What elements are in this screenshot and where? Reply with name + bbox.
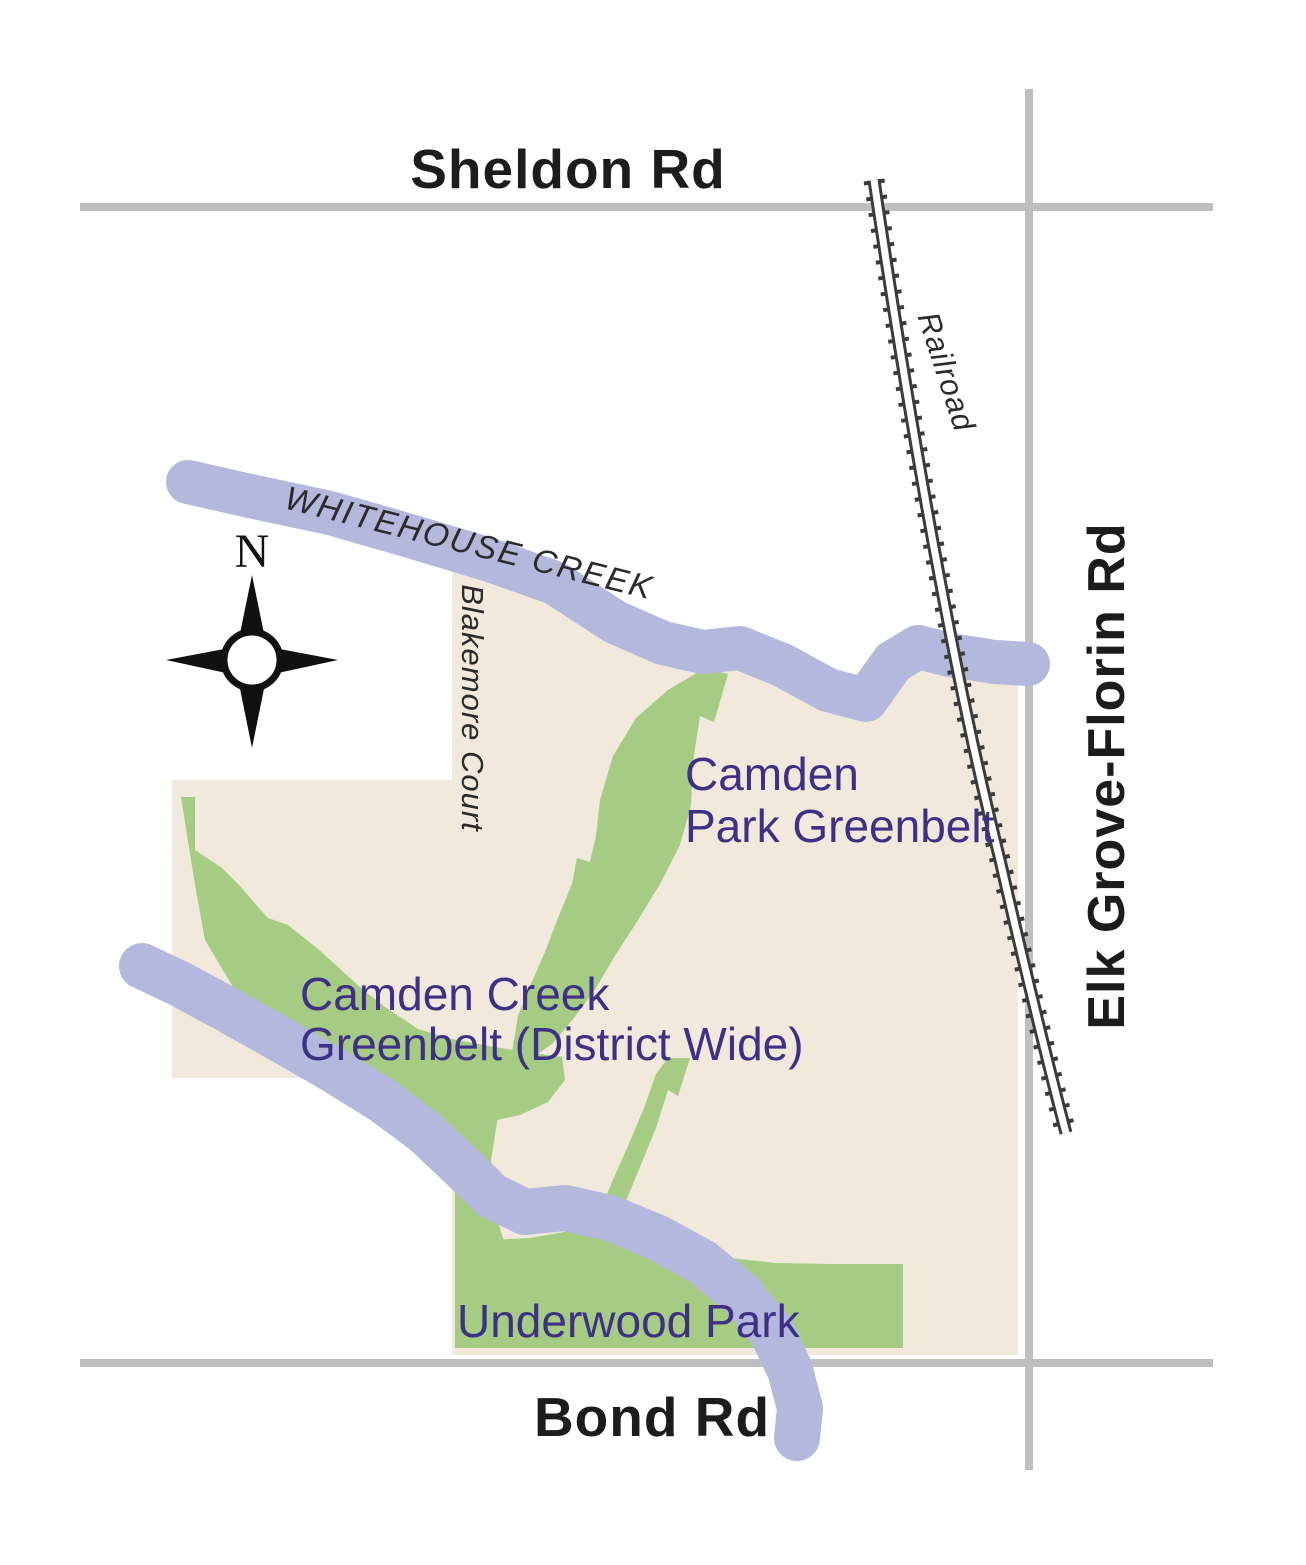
compass-center-circle [224,632,280,688]
bond-rd-label: Bond Rd [534,1386,770,1448]
park-district-map: N Sheldon Rd Bond Rd Elk Grove-Florin Rd… [0,0,1306,1565]
blakemore-court-label: Blakemore Court [455,584,490,832]
camden-creek-greenbelt-label-line2: Greenbelt (District Wide) [300,1018,804,1070]
camden-creek-greenbelt-label-line1: Camden Creek [300,968,610,1020]
sheldon-rd-label: Sheldon Rd [410,138,726,200]
camden-park-greenbelt-label-line1: Camden [685,748,859,800]
map-canvas: N Sheldon Rd Bond Rd Elk Grove-Florin Rd… [0,0,1306,1565]
camden-park-greenbelt-label-line2: Park Greenbelt [685,800,995,852]
compass-north-label: N [235,525,270,578]
elk-grove-florin-rd-label: Elk Grove-Florin Rd [1078,522,1136,1029]
underwood-park-label: Underwood Park [457,1295,801,1347]
